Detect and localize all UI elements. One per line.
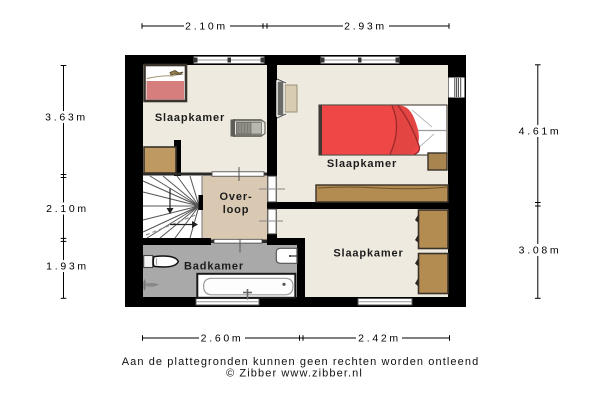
svg-text:2.93m: 2.93m bbox=[344, 21, 387, 33]
svg-text:2.10m: 2.10m bbox=[46, 203, 89, 215]
svg-text:Aan de plattegronden kunnen ge: Aan de plattegronden kunnen geen rechten… bbox=[122, 356, 480, 368]
svg-text:Slaapkamer: Slaapkamer bbox=[327, 158, 397, 170]
svg-text:1.93m: 1.93m bbox=[46, 261, 89, 273]
svg-text:4.61m: 4.61m bbox=[519, 126, 562, 138]
svg-text:2.10m: 2.10m bbox=[185, 21, 228, 33]
svg-text:2.42m: 2.42m bbox=[358, 333, 401, 345]
svg-text:Over-: Over- bbox=[220, 191, 253, 203]
svg-text:© Zibber www.zibber.nl: © Zibber www.zibber.nl bbox=[226, 368, 363, 380]
svg-text:Slaapkamer: Slaapkamer bbox=[333, 248, 403, 260]
svg-text:loop: loop bbox=[223, 204, 250, 216]
svg-text:2.60m: 2.60m bbox=[201, 333, 244, 345]
svg-text:3.08m: 3.08m bbox=[519, 245, 562, 257]
svg-text:Slaapkamer: Slaapkamer bbox=[155, 112, 225, 124]
svg-text:Badkamer: Badkamer bbox=[184, 261, 244, 273]
svg-text:3.63m: 3.63m bbox=[45, 112, 88, 124]
